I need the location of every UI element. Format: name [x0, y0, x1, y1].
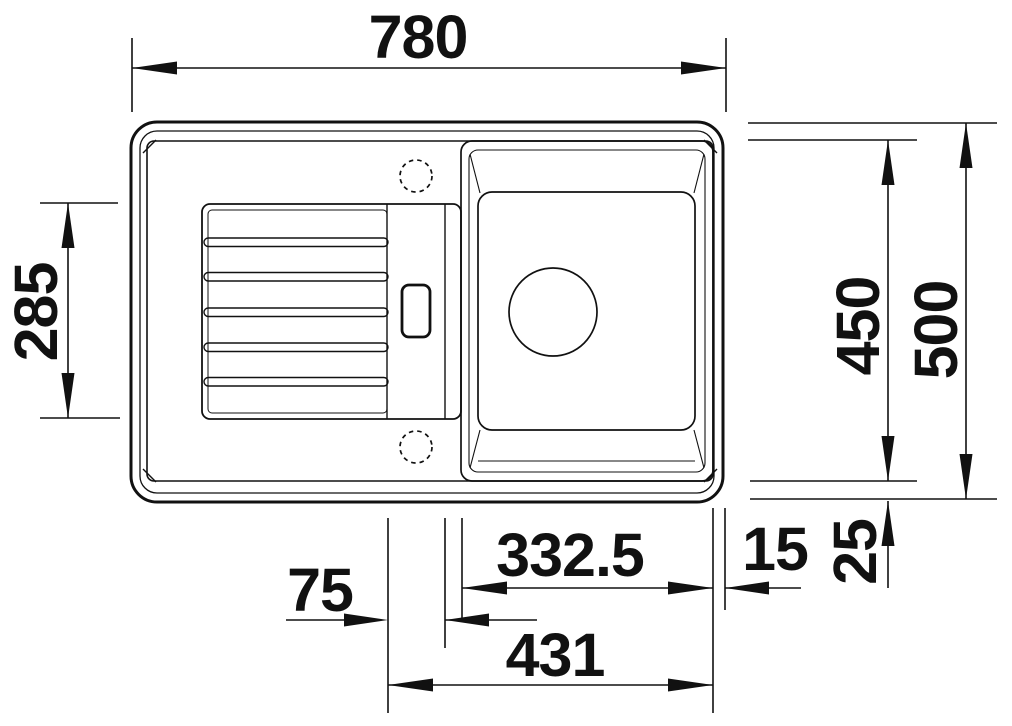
bowl-wall-diagonal-br — [694, 430, 704, 468]
drainboard-groove-3 — [204, 308, 388, 317]
dim-label-500: 500 — [902, 281, 970, 380]
drainboard-inner-line — [208, 210, 387, 413]
arrowhead-up — [62, 203, 75, 248]
dim-drainboard-depth: 285 — [2, 203, 120, 418]
arrowhead-left — [132, 62, 177, 75]
dim-label-25: 25 — [821, 519, 889, 585]
drainboard — [202, 204, 461, 419]
bowl-wall-diagonal-tl — [470, 154, 480, 193]
arrowhead-left — [725, 582, 769, 595]
drainboard-groove-5 — [204, 378, 388, 387]
bowl-floor — [478, 192, 695, 430]
dim-bowl-depth: 450 — [748, 140, 917, 481]
sink-edge-inner-line — [140, 131, 714, 493]
sink-drawing: 780 285 450 500 25 — [0, 0, 1012, 726]
arrowhead-down — [62, 373, 75, 418]
dim-label-431: 431 — [506, 621, 605, 689]
arrowhead-left — [445, 614, 489, 627]
dim-label-285: 285 — [2, 263, 70, 362]
bowl-wall-diagonal-tr — [694, 154, 704, 193]
tap-hole-top — [400, 160, 432, 192]
drainboard-groove-4 — [204, 343, 388, 352]
dim-bowl-offset: 431 — [388, 621, 713, 692]
drainboard-outline — [202, 204, 461, 419]
sink-outline — [131, 122, 723, 502]
dim-overall-width: 780 — [132, 3, 726, 112]
arrowhead-up — [960, 123, 973, 168]
bowl-rim-inner — [469, 150, 705, 472]
technical-drawing-canvas: 780 285 450 500 25 — [0, 0, 1012, 726]
dim-label-450: 450 — [824, 277, 892, 376]
drain-hole — [509, 268, 597, 356]
arrowhead-right — [681, 62, 726, 75]
arrowhead-left — [388, 679, 433, 692]
sink-outer-edge — [131, 122, 723, 502]
arrowhead-up — [882, 140, 895, 185]
dim-right-rim: 15 — [725, 515, 808, 595]
dim-label-780: 780 — [369, 3, 468, 71]
tap-hole-bottom — [400, 431, 432, 463]
dim-bottom-rim: 25 — [821, 501, 895, 588]
dim-label-332-5: 332.5 — [496, 521, 644, 589]
bowl-wall-diagonal-bl — [470, 430, 480, 468]
overflow-slot — [402, 285, 430, 337]
arrowhead-right — [668, 679, 713, 692]
arrowhead-down — [960, 454, 973, 499]
dim-bowl-width: 332.5 — [462, 521, 713, 595]
arrowhead-right — [668, 582, 713, 595]
drainboard-groove-1 — [204, 238, 388, 247]
dim-label-75: 75 — [287, 556, 353, 624]
drainboard-groove-2 — [204, 273, 388, 282]
dim-label-15: 15 — [742, 515, 808, 583]
bowl — [461, 141, 713, 481]
arrowhead-down — [882, 436, 895, 481]
